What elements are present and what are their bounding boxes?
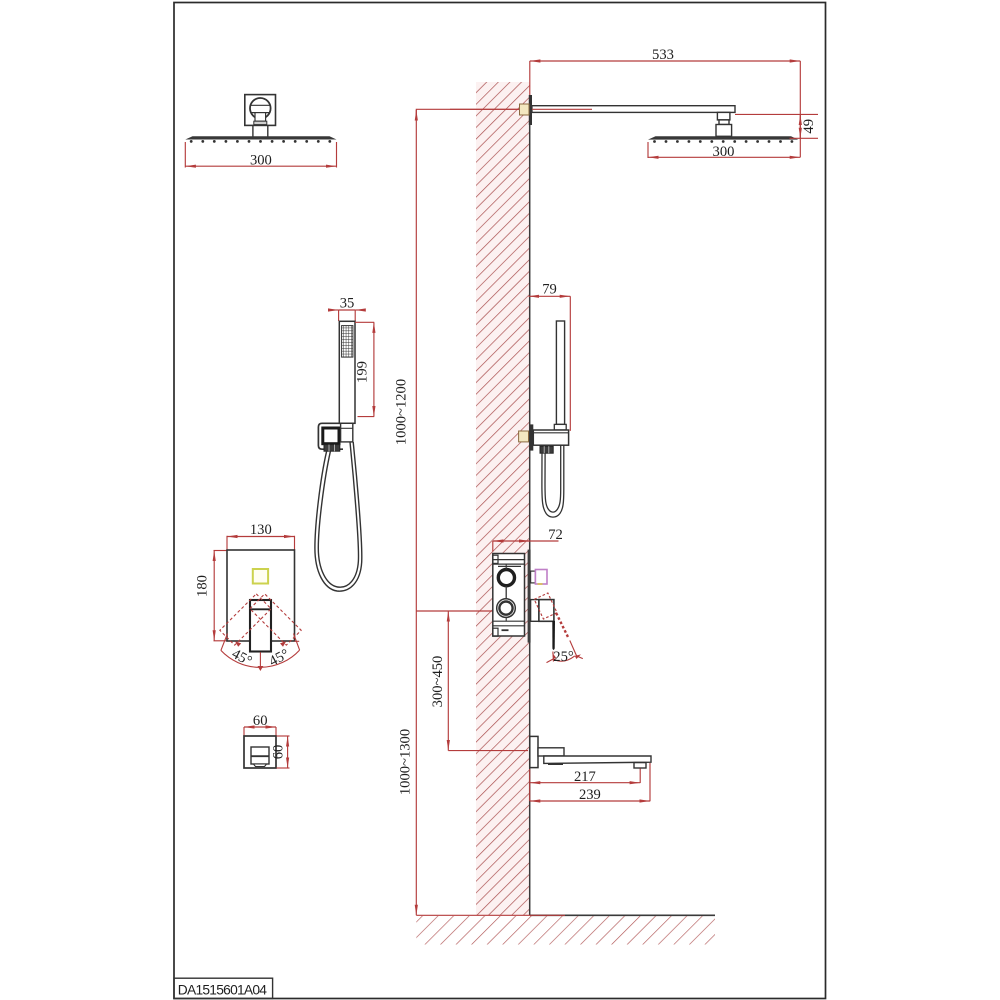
svg-text:239: 239 xyxy=(579,787,601,803)
svg-text:300~450: 300~450 xyxy=(430,656,446,708)
svg-text:DA1515601A04: DA1515601A04 xyxy=(178,982,268,997)
svg-text:217: 217 xyxy=(574,769,596,785)
svg-text:130: 130 xyxy=(250,522,272,538)
svg-text:1000~1300: 1000~1300 xyxy=(398,729,414,795)
svg-text:180: 180 xyxy=(195,575,211,597)
svg-text:79: 79 xyxy=(542,282,557,298)
svg-text:533: 533 xyxy=(652,47,674,63)
svg-text:300: 300 xyxy=(250,153,272,169)
svg-text:300: 300 xyxy=(713,144,735,160)
svg-text:60: 60 xyxy=(271,745,287,760)
svg-text:60: 60 xyxy=(253,713,268,729)
svg-text:49: 49 xyxy=(801,119,817,134)
svg-text:35: 35 xyxy=(340,296,355,312)
svg-text:72: 72 xyxy=(548,527,563,543)
svg-text:1000~1200: 1000~1200 xyxy=(394,379,410,445)
svg-text:199: 199 xyxy=(354,361,370,383)
svg-text:25°: 25° xyxy=(553,649,574,665)
